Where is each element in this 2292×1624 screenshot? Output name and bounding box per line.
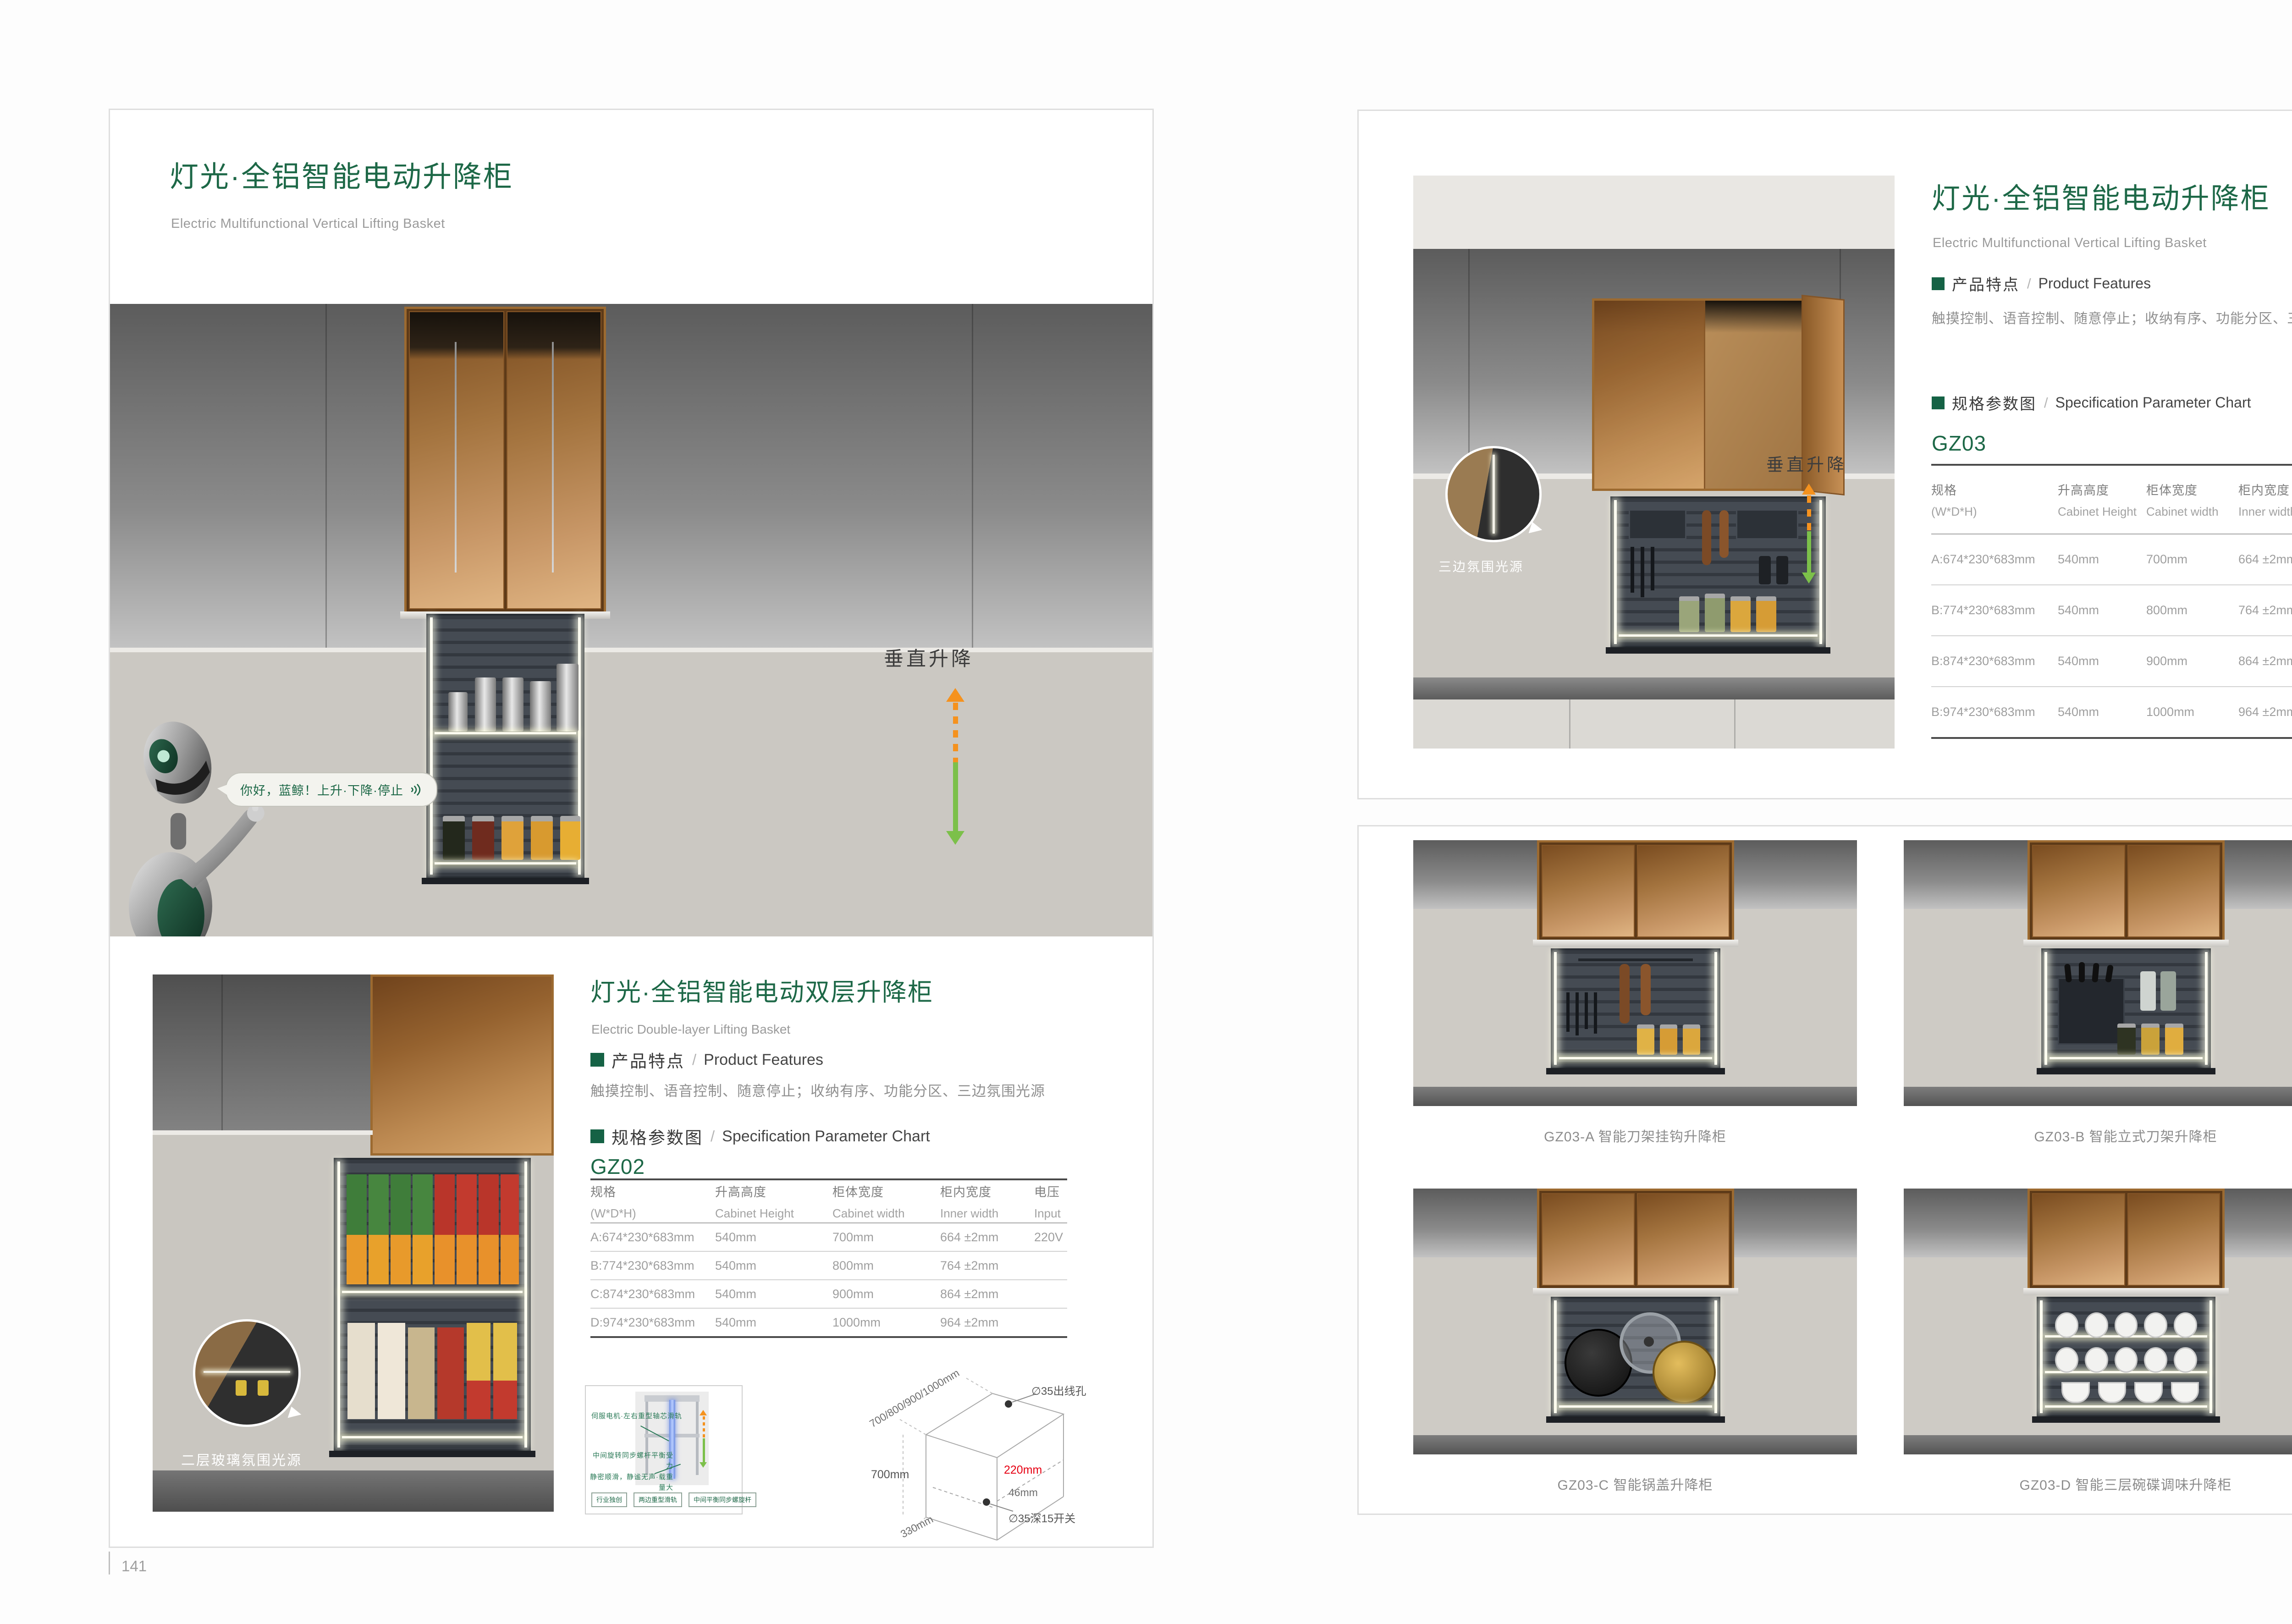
cabinet-door-right: [2127, 845, 2220, 937]
spec-cell: 664 ±2mm: [2238, 552, 2292, 567]
lifting-cabinet-photo: 三边氛围光源 垂直升降: [1413, 176, 1895, 749]
basket-base: [1546, 1416, 1725, 1423]
photo-caption: GZ03-C 智能锅盖升降柜: [1413, 1474, 1857, 1494]
spec-cell: B:774*230*683mm: [590, 1259, 715, 1273]
heading-slash: /: [692, 1051, 696, 1068]
table-row: B:874*230*683mm540mm900mm864 ±2mm: [1931, 636, 2292, 686]
basket-base: [329, 1451, 535, 1457]
diagram-note-line: 静密顺滑，静谧无声·载重量大: [589, 1472, 673, 1493]
bronze-glass-cabinet: [370, 974, 554, 1156]
knife: [1651, 547, 1654, 590]
rail-right: [696, 1402, 699, 1475]
base-cabinets: [1413, 699, 1895, 749]
led-strip-right: [524, 1162, 527, 1448]
spec-heading-zh: 规格参数图: [1952, 391, 2037, 414]
cabinet-door-left: [409, 311, 504, 609]
spec-cell: 540mm: [715, 1287, 832, 1301]
spec-cell: 900mm: [2146, 654, 2238, 668]
canister: [475, 677, 496, 732]
down-arrow-icon: [946, 831, 964, 845]
iso-outlet-hole-label: ∅35出线孔: [1031, 1382, 1086, 1398]
col-header-en: Input: [1034, 1206, 1067, 1221]
table-row: B:774*230*683mm540mm800mm764 ±2mm: [1931, 585, 2292, 635]
gold-fitting: [258, 1380, 269, 1396]
upper-wall: [1413, 176, 1895, 249]
col-header: 升高高度: [715, 1182, 832, 1200]
plate: [2055, 1312, 2078, 1338]
basket-base: [1606, 647, 1830, 654]
knife: [1594, 992, 1597, 1034]
plate: [2144, 1347, 2167, 1373]
diagram-note-line: 中间旋转同步螺杆平衡受力: [589, 1450, 673, 1472]
hero-photo: 你好，蓝鲸！上升·下降·停止 垂直升降: [110, 304, 1152, 936]
up-arrow-icon: [700, 1410, 707, 1415]
robot-speech-bubble: 你好，蓝鲸！上升·下降·停止: [226, 772, 437, 807]
col-header: 规格: [1931, 480, 2058, 498]
gz02-spec-table: 规格(W*D*H) 升高高度Cabinet Height 柜体宽度Cabinet…: [590, 1178, 1067, 1338]
spec-heading: 规格参数图 / Specification Parameter Chart: [1932, 391, 2251, 414]
knife: [1585, 992, 1588, 1029]
countertop: [1904, 1087, 2292, 1106]
dashed-shaft: [703, 1416, 705, 1438]
jar: [1637, 1024, 1654, 1055]
section-bullet: [590, 1053, 604, 1067]
spec-heading-en: Specification Parameter Chart: [722, 1128, 930, 1145]
bowl: [2098, 1382, 2127, 1403]
jar: [1730, 596, 1751, 632]
col-header-en: Cabinet width: [2146, 505, 2238, 519]
table-header-row: 规格(W*D*H) 升高高度Cabinet Height 柜体宽度Cabinet…: [590, 1180, 1067, 1222]
jar: [2165, 1024, 2183, 1055]
table-rule: [1931, 737, 2292, 739]
cabinet-seam: [1468, 249, 1470, 473]
glass-shelf-glow: [1559, 1405, 1712, 1408]
spec-cell: B:974*230*683mm: [1931, 705, 2058, 719]
led-strip-right: [1819, 500, 1822, 644]
gold-fitting: [236, 1380, 247, 1396]
detail-callout-circle: [193, 1319, 301, 1427]
bronze-glass-cabinet: [1537, 840, 1734, 942]
bronze-glass-cabinet: [2028, 1189, 2225, 1290]
led-strip-left: [2040, 1300, 2043, 1413]
solid-shaft: [953, 762, 958, 831]
juice-box: [435, 1174, 455, 1284]
food-box: [437, 1327, 464, 1419]
col-header: 柜内宽度: [2238, 480, 2292, 498]
heading-slash: /: [2027, 275, 2031, 292]
detail-callout-circle: [1445, 446, 1542, 542]
section-bullet: [1932, 277, 1945, 290]
plate: [2115, 1312, 2138, 1338]
table-row: B:974*230*683mm540mm1000mm964 ±2mm: [1931, 687, 2292, 737]
spec-heading: 规格参数图 / Specification Parameter Chart: [590, 1124, 930, 1149]
shelf-box: [1736, 509, 1798, 539]
diagram-tag: 中间平衡同步螺旋杆: [689, 1492, 756, 1507]
col-header-en: Inner width: [2238, 505, 2292, 519]
spec-cell: 900mm: [832, 1287, 940, 1301]
glass-shelf-glow: [2050, 1057, 2203, 1059]
basket-base: [2032, 1416, 2220, 1423]
jar: [472, 816, 494, 860]
diagram-tags: 行业独创 两边重型滑轨 中间平衡同步螺旋杆: [591, 1492, 756, 1507]
lift-mechanism: [507, 312, 601, 359]
cabinet-seam: [1569, 699, 1570, 749]
col-header-en: Cabinet Height: [715, 1206, 832, 1221]
spec-cell: 964 ±2mm: [940, 1316, 1034, 1330]
right-page-bottom: GZ03-A 智能刀架挂钩升降柜: [1357, 825, 2292, 1515]
led-detail: [1493, 455, 1495, 534]
col-header: 规格: [590, 1182, 715, 1200]
features-heading: 产品特点 / Product Features: [590, 1047, 823, 1072]
led-strip-left: [1554, 1300, 1557, 1413]
table-row: B:774*230*683mm540mm800mm764 ±2mm: [590, 1252, 1067, 1279]
cabinet-door-left: [1542, 1193, 1635, 1286]
double-layer-photo: 二层玻璃氛围光源: [153, 974, 554, 1512]
lifting-basket: [426, 614, 584, 878]
model-code: GZ02: [590, 1154, 645, 1179]
juice-box: [369, 1174, 389, 1284]
lift-arrow: [1801, 484, 1817, 584]
countertop: [153, 1470, 554, 1512]
spec-cell: A:674*230*683mm: [1931, 552, 2058, 567]
juice-carton: [493, 1323, 517, 1419]
gz03-spec-table: 规格(W*D*H) 升高高度Cabinet Height 柜体宽度Cabinet…: [1931, 464, 2292, 739]
features-heading-zh: 产品特点: [1952, 272, 2020, 295]
col-header-en: Cabinet Height: [2058, 505, 2146, 519]
features-text: 触摸控制、语音控制、随意停止；收纳有序、功能分区、三边氛围光源: [590, 1079, 1045, 1100]
spec-cell: B:774*230*683mm: [1931, 603, 2058, 617]
speech-text: 你好，蓝鲸！上升·下降·停止: [240, 781, 403, 798]
photo-caption: GZ03-A 智能刀架挂钩升降柜: [1413, 1125, 1857, 1145]
bottle: [2140, 971, 2156, 1011]
spec-cell: 540mm: [715, 1316, 832, 1330]
bowl-row: [2061, 1382, 2199, 1401]
golden-pan: [1653, 1341, 1716, 1404]
upper-cabinets: [110, 304, 1152, 648]
canister: [530, 681, 551, 732]
plate: [2144, 1312, 2167, 1338]
table-header-row: 规格(W*D*H) 升高高度Cabinet Height 柜体宽度Cabinet…: [1931, 466, 2292, 534]
hook-bar: [1578, 958, 1693, 961]
spec-cell: 700mm: [832, 1230, 940, 1244]
col-header: 柜体宽度: [2146, 480, 2238, 498]
knife-block: [2058, 978, 2125, 1045]
led-strip-right: [2205, 952, 2208, 1065]
bronze-glass-cabinet: [1537, 1189, 1734, 1290]
jar: [1683, 1024, 1700, 1055]
bottle: [2160, 971, 2176, 1011]
food-box: [408, 1327, 435, 1419]
spec-cell: 220V: [1034, 1230, 1067, 1244]
col-header-en: (W*D*H): [590, 1206, 715, 1221]
callout-tail: [288, 1407, 303, 1422]
spec-cell: 540mm: [2058, 552, 2146, 567]
juice-box: [391, 1174, 411, 1284]
jar: [1705, 594, 1725, 632]
col-header-en: (W*D*H): [1931, 505, 2058, 519]
col-header: 柜内宽度: [940, 1182, 1034, 1200]
led-strip-left: [337, 1162, 340, 1448]
juice-box: [501, 1174, 519, 1284]
lifting-basket: [1551, 1297, 1720, 1417]
led-strip-right: [1714, 1300, 1717, 1413]
solid-shaft: [1807, 531, 1811, 573]
heading-slash: /: [2044, 395, 2048, 411]
grinder-bottle: [1759, 556, 1771, 584]
juice-carton: [467, 1323, 490, 1419]
spec-cell: 540mm: [2058, 603, 2146, 617]
wooden-spatula: [1641, 964, 1651, 1015]
cabinet-seam: [325, 304, 327, 648]
countertop: [1413, 1087, 1857, 1106]
down-arrow-icon: [1802, 573, 1816, 584]
plate: [2085, 1312, 2108, 1338]
features-heading-zh: 产品特点: [612, 1047, 685, 1072]
diagram-note-1: 伺服电机·左右重型轴芯滑轨: [591, 1411, 688, 1421]
basket-base: [1546, 1068, 1725, 1074]
lifting-basket: [2041, 948, 2211, 1068]
model-code: GZ03: [1932, 431, 1986, 456]
spec-cell: A:674*230*683mm: [590, 1230, 715, 1244]
knife: [1641, 547, 1644, 597]
basket-base: [422, 878, 589, 884]
spec-cell: B:874*230*683mm: [1931, 654, 2058, 668]
dashed-shaft: [953, 703, 958, 762]
photo-caption: GZ03-B 智能立式刀架升降柜: [1904, 1125, 2292, 1145]
led-strip-left: [430, 617, 433, 875]
jar: [2117, 1024, 2136, 1055]
double-layer-basket: [334, 1158, 531, 1451]
page-title: 灯光·全铝智能电动升降柜: [1932, 175, 2270, 216]
col-header: 电压: [1034, 1182, 1067, 1200]
juice-box: [479, 1174, 499, 1284]
led-strip-right: [1714, 952, 1717, 1065]
shelf-edge: [153, 1130, 373, 1135]
iso-height-label: 700mm: [871, 1468, 909, 1481]
cabinet-door-left: [1542, 845, 1635, 937]
shelf-edge: [110, 648, 1152, 652]
table-rule: [590, 1336, 1067, 1338]
spec-cell: 540mm: [715, 1259, 832, 1273]
motion-label: 垂直升降: [1766, 451, 1847, 476]
motion-label: 垂直升降: [884, 643, 974, 672]
footer-tick-left: [109, 1552, 110, 1574]
lift-rod: [552, 342, 554, 573]
canister: [502, 677, 523, 732]
plate: [2174, 1347, 2197, 1373]
wooden-spatula: [1620, 964, 1630, 1024]
basket-base: [2037, 1068, 2215, 1074]
cabinet-ledge: [1533, 940, 1738, 947]
photo-callout-label: 二层玻璃氛围光源: [181, 1449, 302, 1469]
spec-cell: 864 ±2mm: [940, 1287, 1034, 1301]
solid-shaft: [703, 1438, 705, 1462]
glass-shelf-glow: [435, 862, 576, 864]
product-photo-gz03c: [1413, 1189, 1857, 1454]
knife: [1566, 992, 1570, 1032]
catalog-spread: 灯光·全铝智能电动升降柜 Electric Multifunctional Ve…: [0, 0, 2292, 1624]
lifting-basket: [2037, 1297, 2215, 1417]
table-row: D:974*230*683mm540mm1000mm964 ±2mm: [590, 1309, 1067, 1336]
cabinet-seam: [972, 304, 973, 648]
lid-knob: [1644, 1337, 1654, 1347]
cabinet-door-right: [507, 311, 602, 609]
led-strip-left: [1614, 500, 1617, 644]
plate: [2085, 1347, 2108, 1373]
product-photo-gz03b: [1904, 840, 2292, 1106]
glass-shelf-glow: [1619, 634, 1818, 637]
mini-lift-arrow: [700, 1410, 708, 1468]
lift-rod: [455, 342, 457, 573]
spec-cell: 1000mm: [2146, 705, 2238, 719]
spec-cell: C:874*230*683mm: [590, 1287, 715, 1301]
cabinet-ledge: [1533, 1288, 1738, 1295]
shelf-box: [1629, 509, 1686, 539]
led-detail: [204, 1371, 290, 1373]
cabinet-ledge: [2023, 1288, 2229, 1295]
cabinet-ledge: [2023, 940, 2229, 947]
bowl: [2061, 1382, 2090, 1403]
page-number-left: 141: [121, 1558, 147, 1575]
jar: [531, 816, 553, 860]
section-bullet: [1932, 396, 1945, 409]
cabinet-door-left: [1594, 301, 1705, 489]
table-row: A:674*230*683mm540mm700mm664 ±2mm220V: [1931, 534, 2292, 584]
spec-cell: 540mm: [2058, 705, 2146, 719]
juice-box: [413, 1174, 433, 1284]
page-subtitle: Electric Multifunctional Vertical Liftin…: [171, 216, 445, 231]
spec-cell: 964 ±2mm: [2238, 705, 2292, 719]
plate-row: [2055, 1312, 2197, 1335]
jar: [1679, 596, 1699, 632]
spec-cell: 540mm: [2058, 654, 2146, 668]
lift-arrow: [945, 688, 965, 845]
glass-shelf-glow: [435, 732, 576, 734]
down-arrow-icon: [700, 1462, 707, 1468]
page-subtitle: Electric Multifunctional Vertical Liftin…: [1933, 236, 2207, 251]
spec-cell: 764 ±2mm: [940, 1259, 1034, 1273]
spec-cell: 664 ±2mm: [940, 1230, 1034, 1244]
countertop: [1904, 1435, 2292, 1454]
heading-slash: /: [711, 1128, 715, 1145]
spec-heading-zh: 规格参数图: [612, 1124, 703, 1149]
section-bullet: [590, 1129, 604, 1143]
cabinet-door-right: [2127, 1193, 2220, 1286]
mechanism-diagram: 伺服电机·左右重型轴芯滑轨 中间旋转同步螺杆平衡受力 静密顺滑，静谧无声·载重量…: [585, 1385, 743, 1514]
bowl: [2134, 1382, 2163, 1403]
bowl: [2171, 1382, 2199, 1403]
diagram-tag: 两边重型滑轨: [634, 1492, 682, 1507]
spec-cell: D:974*230*683mm: [590, 1316, 715, 1330]
wooden-spatula: [1719, 510, 1729, 558]
glass-shelf-glow: [342, 1291, 523, 1293]
spec-cell: 800mm: [832, 1259, 940, 1273]
cabinet-door-left: [2032, 845, 2125, 937]
led-strip-left: [2044, 952, 2047, 1065]
jar: [560, 816, 580, 860]
plate: [2174, 1312, 2197, 1338]
cabinet-seam: [221, 974, 223, 1130]
right-page-top: 三边氛围光源 垂直升降 灯光·全铝智能电动升降柜 Electric Multif…: [1357, 110, 2292, 799]
knife-handle: [2079, 962, 2085, 982]
diagram-tag: 行业独创: [591, 1492, 627, 1507]
food-box: [347, 1323, 375, 1419]
jar: [2141, 1024, 2160, 1055]
photo-callout-label: 三边氛围光源: [1438, 557, 1524, 575]
lift-mechanism: [410, 312, 503, 359]
plate-row: [2055, 1347, 2197, 1370]
features-heading-en: Product Features: [2039, 275, 2151, 292]
jar: [1756, 596, 1776, 632]
dashed-shaft: [1807, 495, 1811, 531]
wooden-spatula: [1702, 510, 1711, 565]
iso-offset-label: 46mm: [1008, 1486, 1038, 1499]
knife: [1631, 547, 1634, 593]
spec-heading-en: Specification Parameter Chart: [2055, 394, 2251, 411]
plate: [2115, 1347, 2138, 1373]
cabinet-seam: [1734, 699, 1736, 749]
canister: [556, 664, 579, 732]
left-page: 灯光·全铝智能电动升降柜 Electric Multifunctional Ve…: [109, 109, 1154, 1548]
spec-cell: 800mm: [2146, 603, 2238, 617]
table-row: A:674*230*683mm540mm700mm664 ±2mm220V: [590, 1223, 1067, 1251]
glass-shelf-glow: [1559, 1057, 1712, 1059]
cabinet-door-right: [1637, 1193, 1730, 1286]
iso-inner-height-label: 220mm: [1004, 1464, 1042, 1477]
section-subtitle: Electric Double-layer Lifting Basket: [591, 1022, 790, 1037]
grinder-bottle: [1776, 556, 1788, 584]
sound-wave-icon: [409, 783, 423, 797]
product-photo-gz03a: [1413, 840, 1857, 1106]
glass-shelf-glow: [2045, 1405, 2207, 1408]
iso-switch-label: ∅35深15开关: [1008, 1509, 1075, 1525]
up-arrow-icon: [946, 688, 964, 702]
col-header: 升高高度: [2058, 480, 2146, 498]
spec-cell: 864 ±2mm: [2238, 654, 2292, 668]
bronze-glass-cabinet: [404, 307, 606, 614]
spec-cell: 1000mm: [832, 1316, 940, 1330]
jar: [1660, 1024, 1677, 1055]
bronze-glass-cabinet: [2028, 840, 2225, 942]
features-heading-en: Product Features: [704, 1051, 823, 1069]
glass-shelf-glow: [342, 1436, 523, 1438]
cabinet-door-left: [2032, 1193, 2125, 1286]
lifting-basket: [1551, 948, 1720, 1068]
countertop: [1413, 677, 1895, 699]
juice-box: [347, 1174, 367, 1284]
col-header-en: Inner width: [940, 1206, 1034, 1221]
photo-caption: GZ03-D 智能三层碗碟调味升降柜: [1904, 1474, 2292, 1494]
plate: [2055, 1347, 2078, 1373]
page-title: 灯光·全铝智能电动升降柜: [170, 154, 513, 195]
countertop: [1413, 1435, 1857, 1454]
juice-box: [457, 1174, 477, 1284]
food-box: [378, 1323, 405, 1419]
product-photo-gz03d: [1904, 1189, 2292, 1454]
col-header: 柜体宽度: [832, 1182, 940, 1200]
jar: [501, 816, 523, 860]
col-header-en: Cabinet width: [832, 1206, 940, 1221]
knife: [1576, 992, 1579, 1035]
dimension-drawing: 700/800/900/1000mm ∅35出线孔 700mm 220mm 46…: [871, 1350, 1082, 1556]
robot-illustration: [123, 702, 302, 936]
spec-cell: 764 ±2mm: [2238, 603, 2292, 617]
led-strip-left: [1554, 952, 1557, 1065]
led-strip-right: [2209, 1300, 2212, 1413]
up-arrow-icon: [1802, 484, 1816, 495]
table-row: C:874*230*683mm540mm900mm864 ±2mm: [590, 1280, 1067, 1308]
lifting-basket: [1610, 496, 1826, 648]
